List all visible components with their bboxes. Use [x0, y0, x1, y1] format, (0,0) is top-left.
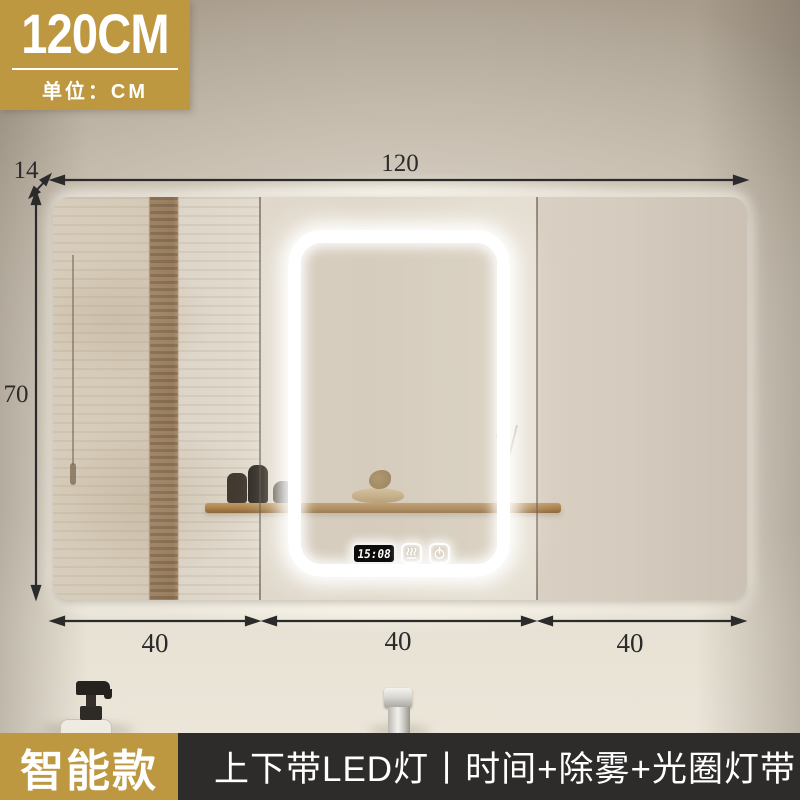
stone-texture-reflection	[150, 197, 178, 600]
model-badge-label: 智能款	[20, 735, 158, 799]
door-seam	[536, 197, 538, 600]
led-light-ring	[288, 230, 510, 577]
dimension-height-line	[32, 192, 40, 598]
cabinet-door-right	[537, 197, 747, 600]
power-button	[429, 543, 450, 564]
product-image: 15:08	[0, 0, 800, 800]
soap-dispenser-pump	[76, 681, 110, 695]
feature-banner-text: 上下带LED灯丨时间+除雾+光圈灯带	[178, 741, 796, 792]
cabinet-door-left	[53, 197, 260, 600]
size-badge-value: 120CM	[15, 6, 175, 62]
defog-button	[401, 543, 422, 564]
faucet-spout	[384, 688, 412, 708]
size-badge: 120CM 单位：CM	[0, 0, 190, 110]
faucet-body	[388, 707, 410, 733]
model-badge: 智能款	[0, 733, 178, 800]
size-badge-unit: 单位：CM	[0, 75, 190, 104]
clock-time: 15:08	[356, 547, 391, 561]
door-seam	[259, 197, 261, 600]
dimension-door1-label: 40	[125, 628, 185, 659]
defog-icon	[405, 547, 418, 560]
pull-cord-reflection	[72, 255, 74, 465]
dimension-door3-label: 40	[600, 628, 660, 659]
dimension-door2-label: 40	[368, 626, 428, 657]
soap-dispenser-collar	[80, 706, 102, 720]
soap-dispenser-stem	[86, 694, 96, 707]
mirror-cabinet: 15:08	[53, 197, 747, 600]
vase	[248, 465, 268, 503]
dimension-width-label: 120	[370, 150, 430, 178]
size-badge-divider	[12, 68, 178, 70]
clock-display: 15:08	[352, 543, 396, 564]
power-icon	[433, 547, 446, 560]
vase	[227, 473, 247, 503]
dimension-depth-label: 14	[8, 157, 44, 185]
feature-banner: 上下带LED灯丨时间+除雾+光圈灯带	[178, 733, 800, 800]
dimension-height-label: 70	[0, 381, 32, 409]
